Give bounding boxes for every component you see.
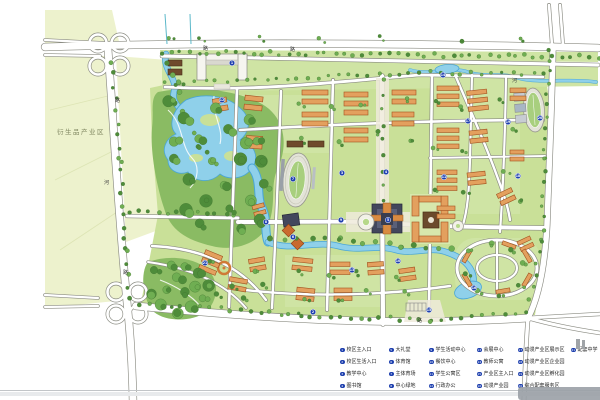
site-plan-map: 123456789101112131415161718192021 衍生品产业区… [0, 0, 600, 400]
legend-item: 10餐饮中心 [429, 359, 466, 365]
map-marker: 9 [338, 217, 344, 223]
svg-text:11: 11 [442, 175, 446, 179]
map-marker: 14 [440, 72, 446, 78]
legend-item: 8中心绿地 [389, 383, 416, 389]
legend-item-label: 体育馆 [396, 360, 411, 365]
legend-number-marker: 18 [518, 360, 523, 365]
legend-number-marker: 8 [389, 384, 394, 389]
map-marker: 6 [290, 234, 296, 240]
map-marker: 1 [229, 60, 235, 66]
legend-number-marker: 9 [429, 348, 434, 353]
legend-column: 1校区主入口2校区生活入口3教学中心4图书馆 [340, 347, 377, 395]
legend-number-marker: 12 [429, 384, 434, 389]
page-edge-shadow [0, 392, 600, 396]
svg-text:15: 15 [427, 308, 431, 312]
map-marker: 12 [219, 97, 225, 103]
map-marker: 5 [385, 217, 391, 223]
map-marker: 3 [339, 170, 345, 176]
legend-number-marker: 1 [340, 348, 345, 353]
road-name-glyph: 路 [123, 269, 128, 276]
legend-item: 1校区主入口 [340, 347, 377, 353]
legend-number-marker: 11 [429, 372, 434, 377]
legend-item: 2校区生活入口 [340, 359, 377, 365]
corner-shadow [518, 387, 600, 400]
legend-column: 13会展中心14教师公寓15产业区主入口16动漫产业园 [477, 347, 514, 395]
legend-item: 12行政办公 [429, 383, 466, 389]
legend-number-marker: 2 [340, 360, 345, 365]
legend-item-label: 会展中心 [484, 348, 504, 353]
area-label: 衍生品产业区 [57, 127, 105, 136]
road-name-glyph: 路 [203, 45, 208, 52]
svg-text:2: 2 [312, 310, 314, 314]
legend-item-label: 餐饮中心 [436, 360, 456, 365]
page: 123456789101112131415161718192021 衍生品产业区… [0, 0, 600, 400]
svg-text:16: 16 [472, 286, 477, 290]
legend-item: 7主体育场 [389, 371, 416, 377]
staple-mark [576, 339, 580, 349]
gymnasium-building [282, 213, 300, 227]
east-courtyard-complex [410, 194, 450, 244]
legend-item-label: 配套中学 [578, 348, 598, 353]
legend-item: 13会展中心 [477, 347, 514, 353]
map-marker: 15 [426, 307, 432, 313]
svg-text:1: 1 [231, 61, 233, 65]
legend-item: 3教学中心 [340, 371, 377, 377]
legend-column: 5大礼堂6体育馆7主体育场8中心绿地 [389, 347, 416, 395]
legend-number-marker: 19 [518, 372, 523, 377]
map-marker: 2 [310, 309, 316, 315]
legend-item: 9学生活动中心 [429, 347, 466, 353]
legend-item: 16动漫产业园 [477, 383, 514, 389]
map-marker: 19 [505, 119, 511, 125]
legend-item-label: 校区生活入口 [347, 360, 377, 365]
svg-text:12: 12 [220, 98, 224, 102]
legend-number-marker: 15 [477, 372, 482, 377]
map-marker: 16 [471, 285, 477, 291]
road-name-glyph: 河 [512, 77, 517, 84]
svg-text:7: 7 [292, 177, 294, 181]
legend-item-label: 主体育场 [396, 372, 416, 377]
legend-number-marker: 10 [429, 360, 434, 365]
map-marker: 13 [349, 267, 355, 273]
svg-text:19: 19 [506, 120, 511, 124]
legend-item-label: 行政办公 [436, 384, 456, 389]
legend-item-label: 动漫产业区展示区 [525, 348, 565, 353]
legend-item: 19动漫产业区孵化园 [518, 371, 565, 377]
legend-number-marker: 3 [340, 372, 345, 377]
legend-item-label: 动漫产业区企业园 [525, 360, 565, 365]
legend-item: 17动漫产业区展示区 [518, 347, 565, 353]
map-marker: 4 [383, 169, 389, 175]
legend-item: 4图书馆 [340, 383, 377, 389]
road-name-glyph: 路 [115, 97, 120, 104]
legend-item-label: 大礼堂 [396, 348, 411, 353]
legend-number-marker: 16 [477, 384, 482, 389]
legend-item: 6体育馆 [389, 359, 416, 365]
legend-item: 18动漫产业区企业园 [518, 359, 565, 365]
staple-mark [582, 340, 585, 349]
legend-column: 9学生活动中心10餐饮中心11学生公寓区12行政办公 [429, 347, 466, 395]
svg-text:14: 14 [441, 73, 446, 77]
map-marker: 10 [395, 258, 401, 264]
legend-number-marker: 4 [340, 384, 345, 389]
road-name-glyph: 河 [104, 179, 109, 186]
legend-item: 15产业区主入口 [477, 371, 514, 377]
map-marker: 20 [537, 115, 543, 121]
legend-number-marker: 14 [477, 360, 482, 365]
legend-item-label: 中心绿地 [396, 384, 416, 389]
legend-item-label: 教师公寓 [484, 360, 504, 365]
legend-item-label: 学生活动中心 [436, 348, 466, 353]
map-marker: 8 [263, 219, 269, 225]
legend-number-marker: 6 [389, 360, 394, 365]
svg-text:20: 20 [538, 116, 543, 120]
legend-item-label: 动漫产业园 [484, 384, 509, 389]
page-edge-line [0, 390, 600, 391]
svg-text:13: 13 [350, 268, 354, 272]
map-marker: 18 [515, 173, 521, 179]
legend-item-label: 产业区主入口 [484, 372, 514, 377]
legend-number-marker: 17 [518, 348, 523, 353]
legend-number-marker: 21 [571, 348, 576, 353]
map-marker: 21 [202, 260, 208, 266]
legend-item-label: 学生公寓区 [436, 372, 461, 377]
legend-item-label: 教学中心 [347, 372, 367, 377]
legend-item-label: 校区主入口 [347, 348, 372, 353]
svg-text:21: 21 [203, 261, 207, 265]
road-name-glyph: 路 [290, 46, 295, 53]
legend-item-label: 动漫产业区孵化园 [525, 372, 565, 377]
svg-text:18: 18 [516, 174, 521, 178]
svg-text:3: 3 [341, 171, 343, 175]
legend-item-label: 图书馆 [347, 384, 362, 389]
svg-text:17: 17 [466, 119, 470, 123]
legend-number-marker: 13 [477, 348, 482, 353]
map-marker: 7 [290, 176, 296, 182]
legend-item: 11学生公寓区 [429, 371, 466, 377]
road-name-glyph: 路 [417, 317, 422, 324]
legend-number-marker: 5 [389, 348, 394, 353]
svg-text:10: 10 [396, 259, 401, 263]
svg-text:5: 5 [387, 218, 389, 222]
legend-item: 5大礼堂 [389, 347, 416, 353]
legend-number-marker: 7 [389, 372, 394, 377]
map-marker: 11 [441, 174, 447, 180]
map-marker: 17 [465, 118, 471, 124]
legend-item: 14教师公寓 [477, 359, 514, 365]
